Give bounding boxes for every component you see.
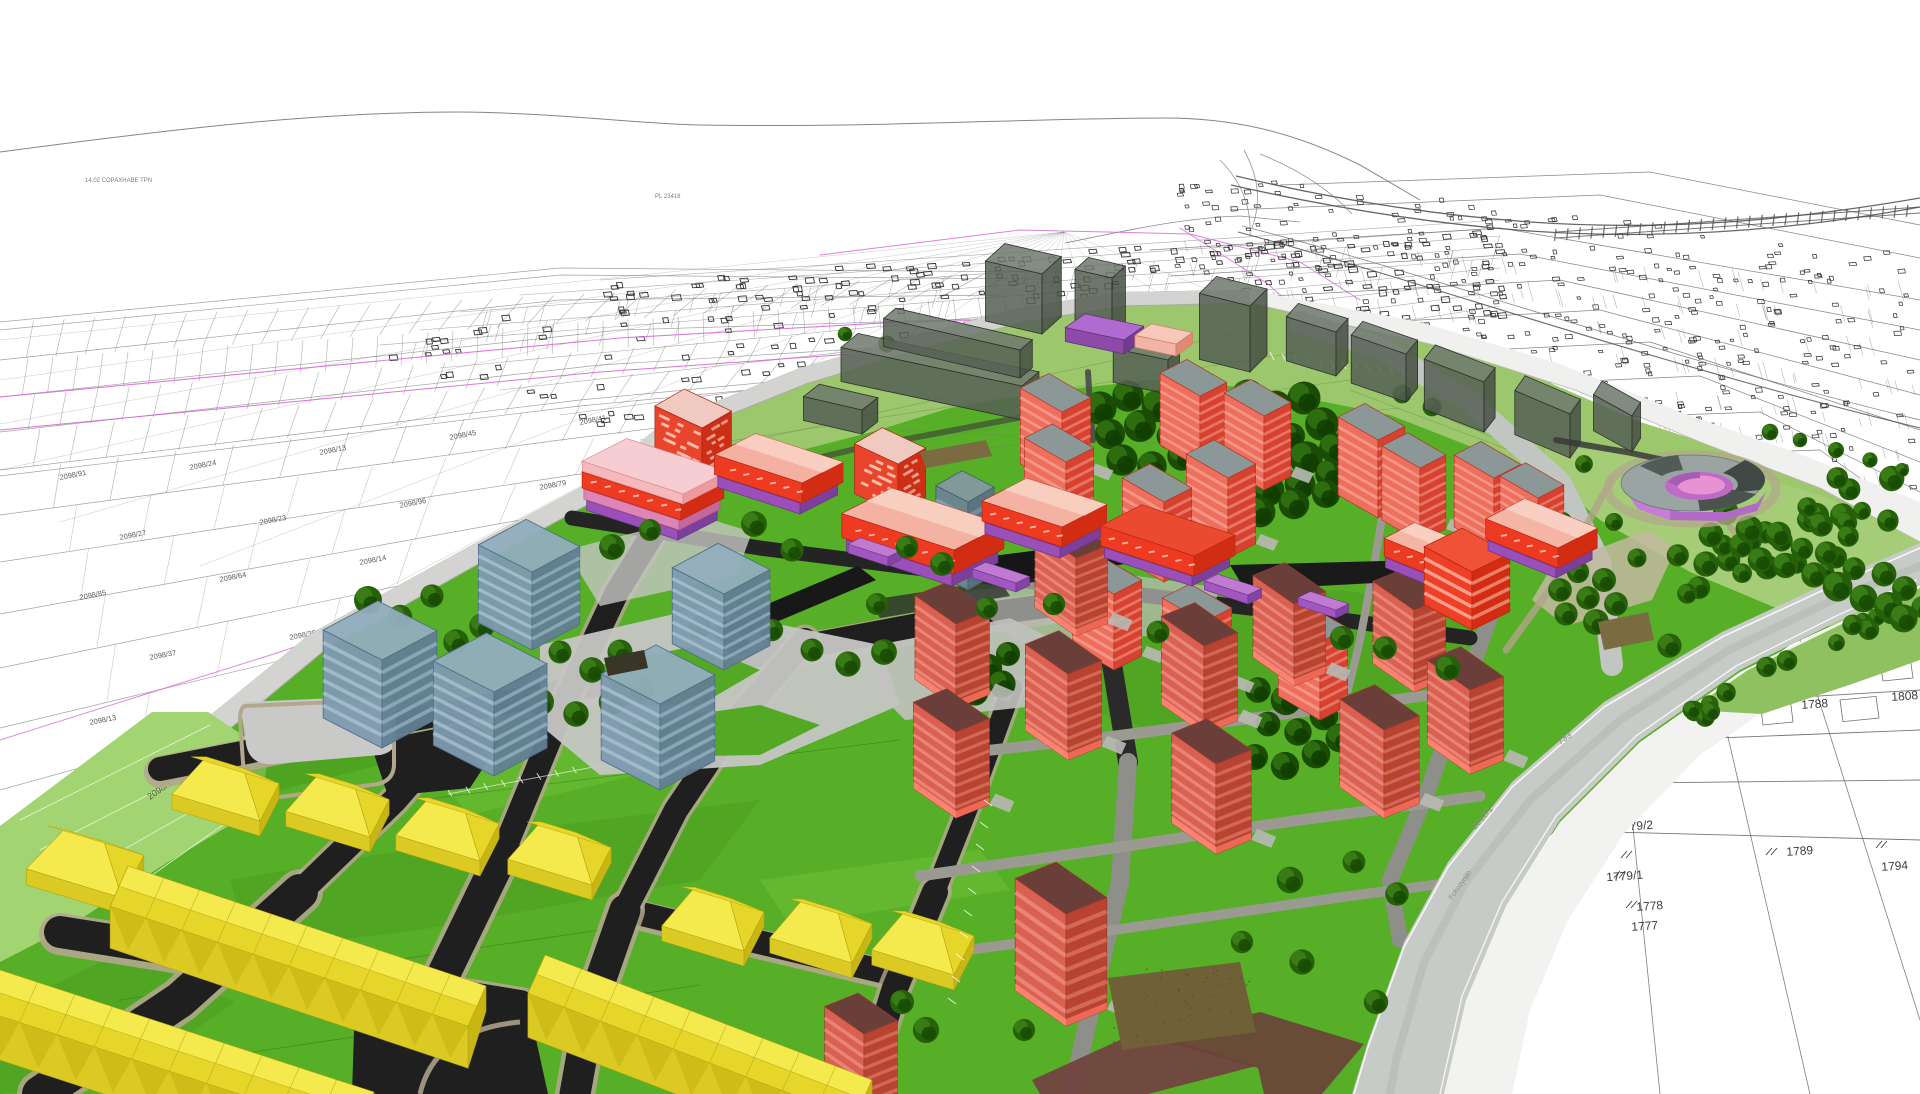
svg-text:1779/1: 1779/1: [1606, 868, 1644, 885]
svg-text:1794: 1794: [1881, 858, 1909, 874]
svg-text:1778: 1778: [1636, 898, 1664, 914]
svg-text:14.02 COPAXHABE TPN: 14.02 COPAXHABE TPN: [85, 178, 152, 184]
svg-text:1808: 1808: [1891, 688, 1919, 704]
svg-text:PL 23418: PL 23418: [655, 194, 681, 200]
svg-text:1777: 1777: [1631, 918, 1659, 934]
svg-text:1789: 1789: [1786, 843, 1814, 859]
